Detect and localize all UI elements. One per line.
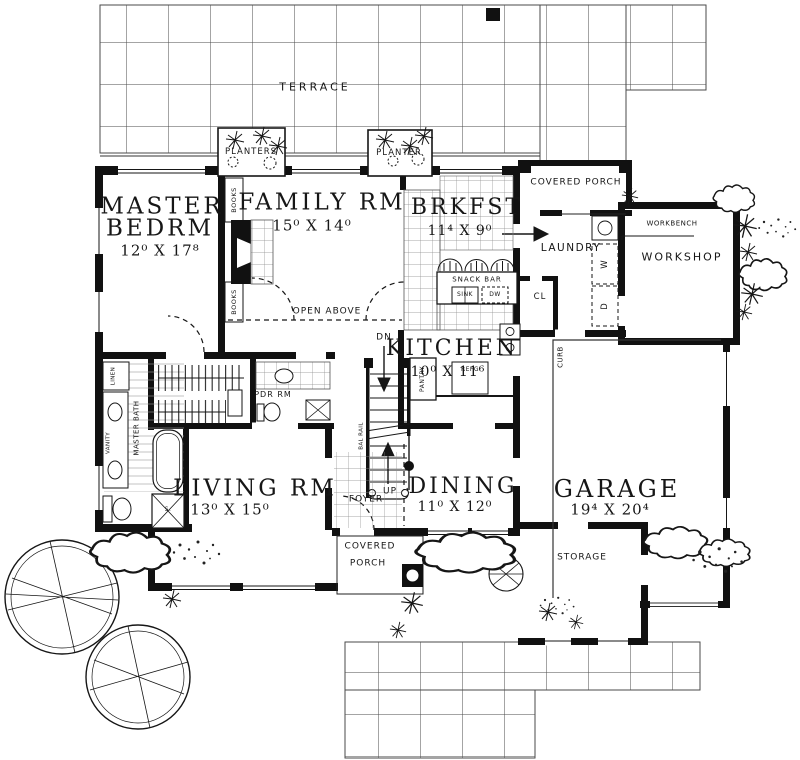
vanity-label: VANITY <box>106 432 112 454</box>
floor-plan: TERRACE PLANTERS PLANTER COVERED PORCH M… <box>0 0 800 760</box>
family-rm-dim: 15⁰ X 14⁰ <box>272 219 351 234</box>
stairs-up-label: UP <box>383 488 397 497</box>
open-above-label: OPEN ABOVE <box>293 308 362 317</box>
floor-plan-drawing <box>0 0 800 760</box>
shower-label: S. <box>165 507 172 513</box>
storage-label: STORAGE <box>557 554 607 563</box>
terrace-label: TERRACE <box>279 82 350 93</box>
washer-label: W <box>601 259 610 268</box>
pantry-label: PANTRY <box>420 366 426 392</box>
covered-porch-bottom-label1: COVERED <box>345 543 396 552</box>
covered-porch-top-label: COVERED PORCH <box>530 179 621 188</box>
books-bottom-label: BOOKS <box>231 289 238 314</box>
workshop-label: WORKSHOP <box>642 252 723 263</box>
dryer-label: D <box>601 302 610 310</box>
closet-cl-label: CL <box>534 293 547 302</box>
living-rm-label: LIVING RM <box>173 478 337 501</box>
master-bedroom-label2: BEDRM <box>106 218 214 241</box>
workbench-label: WORKBENCH <box>647 221 698 228</box>
dishwasher-label: DW <box>489 292 501 298</box>
planter-left-label: PLANTERS <box>225 148 277 157</box>
covered-porch-bottom-label2: PORCH <box>350 560 386 569</box>
sink-label: SINK <box>457 292 473 298</box>
powder-room-label: PDR RM <box>254 391 292 399</box>
driveway-paving <box>345 642 700 758</box>
stairs-dn-label: DN <box>376 334 392 343</box>
dining-dim: 11⁰ X 12⁰ <box>418 500 493 514</box>
garage-label: GARAGE <box>554 477 681 501</box>
dining-label: DINING <box>408 476 517 498</box>
master-bath-label: MASTER BATH <box>134 400 141 455</box>
stair-rail-label: BAL RAIL <box>359 422 365 450</box>
curb-label: CURB <box>558 346 565 368</box>
brkfst-dim: 11⁴ X 9⁰ <box>428 224 493 238</box>
garage-curb <box>553 340 721 607</box>
garage-dim: 19⁴ X 20⁴ <box>570 503 649 518</box>
living-rm-dim: 13⁰ X 15⁰ <box>190 503 269 518</box>
master-bedroom-dim: 12⁰ X 17⁸ <box>120 244 199 259</box>
laundry-label: LAUNDRY <box>541 243 601 254</box>
books-top-label: BOOKS <box>231 187 238 212</box>
linen-label: LINEN <box>111 367 117 385</box>
planter-right-label: PLANTER <box>376 149 422 158</box>
brkfst-label: BRKFST <box>411 197 523 219</box>
foyer-label: FOYER <box>349 496 383 505</box>
kitchen-label: KITCHEN <box>386 338 518 360</box>
workbench-outline <box>622 236 694 240</box>
snack-bar-label: SNACK BAR <box>452 277 502 284</box>
family-rm-label: FAMILY RM <box>238 192 405 215</box>
refrigerator-label: REFG <box>461 367 479 373</box>
